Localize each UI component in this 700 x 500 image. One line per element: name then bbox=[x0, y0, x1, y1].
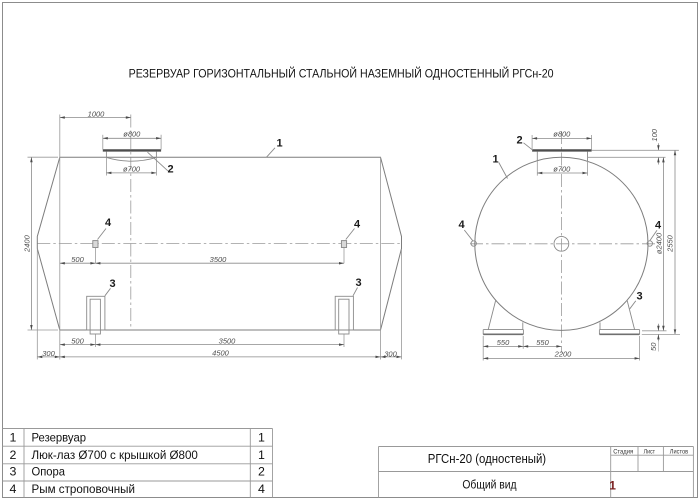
svg-text:2: 2 bbox=[258, 464, 265, 478]
svg-text:ø2400: ø2400 bbox=[655, 232, 664, 254]
svg-text:1: 1 bbox=[277, 138, 283, 150]
svg-text:4: 4 bbox=[655, 219, 662, 231]
svg-text:2: 2 bbox=[517, 134, 523, 146]
svg-text:2550: 2550 bbox=[665, 234, 674, 253]
svg-text:300: 300 bbox=[384, 350, 397, 359]
svg-text:ø700: ø700 bbox=[553, 165, 571, 174]
svg-text:Рым строповочный: Рым строповочный bbox=[32, 482, 136, 496]
svg-text:3500: 3500 bbox=[219, 336, 237, 345]
svg-text:Люк-лаз Ø700 с крышкой Ø800: Люк-лаз Ø700 с крышкой Ø800 bbox=[32, 448, 198, 462]
svg-text:Листов: Листов bbox=[670, 448, 689, 455]
svg-text:Общий вид: Общий вид bbox=[462, 478, 516, 492]
svg-text:550: 550 bbox=[536, 338, 549, 347]
svg-text:1: 1 bbox=[258, 431, 265, 445]
svg-text:1: 1 bbox=[609, 478, 616, 492]
svg-text:1: 1 bbox=[10, 431, 17, 445]
svg-text:3500: 3500 bbox=[210, 255, 228, 264]
svg-text:4: 4 bbox=[105, 217, 112, 229]
svg-text:ø800: ø800 bbox=[553, 130, 571, 139]
svg-text:4: 4 bbox=[10, 482, 17, 496]
svg-text:Стадия: Стадия bbox=[613, 448, 633, 455]
svg-text:2200: 2200 bbox=[554, 349, 573, 358]
svg-text:4: 4 bbox=[354, 219, 361, 231]
svg-text:4500: 4500 bbox=[212, 348, 230, 357]
svg-text:1: 1 bbox=[493, 154, 499, 166]
svg-text:РГСн-20 (одностеный): РГСн-20 (одностеный) bbox=[428, 452, 546, 466]
svg-text:ø800: ø800 bbox=[123, 130, 141, 139]
svg-text:2400: 2400 bbox=[23, 234, 32, 253]
svg-text:3: 3 bbox=[110, 278, 116, 290]
svg-text:50: 50 bbox=[649, 342, 658, 351]
svg-text:2: 2 bbox=[168, 164, 174, 176]
svg-text:500: 500 bbox=[71, 255, 84, 264]
svg-text:3: 3 bbox=[356, 277, 362, 289]
svg-text:ø700: ø700 bbox=[123, 164, 141, 173]
svg-text:1: 1 bbox=[258, 448, 265, 462]
svg-text:550: 550 bbox=[497, 338, 510, 347]
svg-text:2: 2 bbox=[10, 448, 17, 462]
svg-text:100: 100 bbox=[650, 128, 659, 141]
svg-text:4: 4 bbox=[459, 219, 466, 231]
svg-text:Лист: Лист bbox=[644, 448, 656, 455]
svg-text:Резервуар: Резервуар bbox=[32, 431, 87, 445]
svg-text:300: 300 bbox=[42, 349, 55, 358]
svg-text:1000: 1000 bbox=[88, 110, 106, 119]
svg-text:500: 500 bbox=[71, 336, 84, 345]
svg-text:3: 3 bbox=[637, 290, 643, 302]
svg-text:4: 4 bbox=[258, 482, 265, 496]
svg-text:Опора: Опора bbox=[32, 464, 66, 478]
svg-text:3: 3 bbox=[10, 464, 17, 478]
svg-text:РЕЗЕРВУАР ГОРИЗОНТАЛЬНЫЙ СТАЛЬ: РЕЗЕРВУАР ГОРИЗОНТАЛЬНЫЙ СТАЛЬНОЙ НАЗЕМН… bbox=[129, 66, 554, 81]
